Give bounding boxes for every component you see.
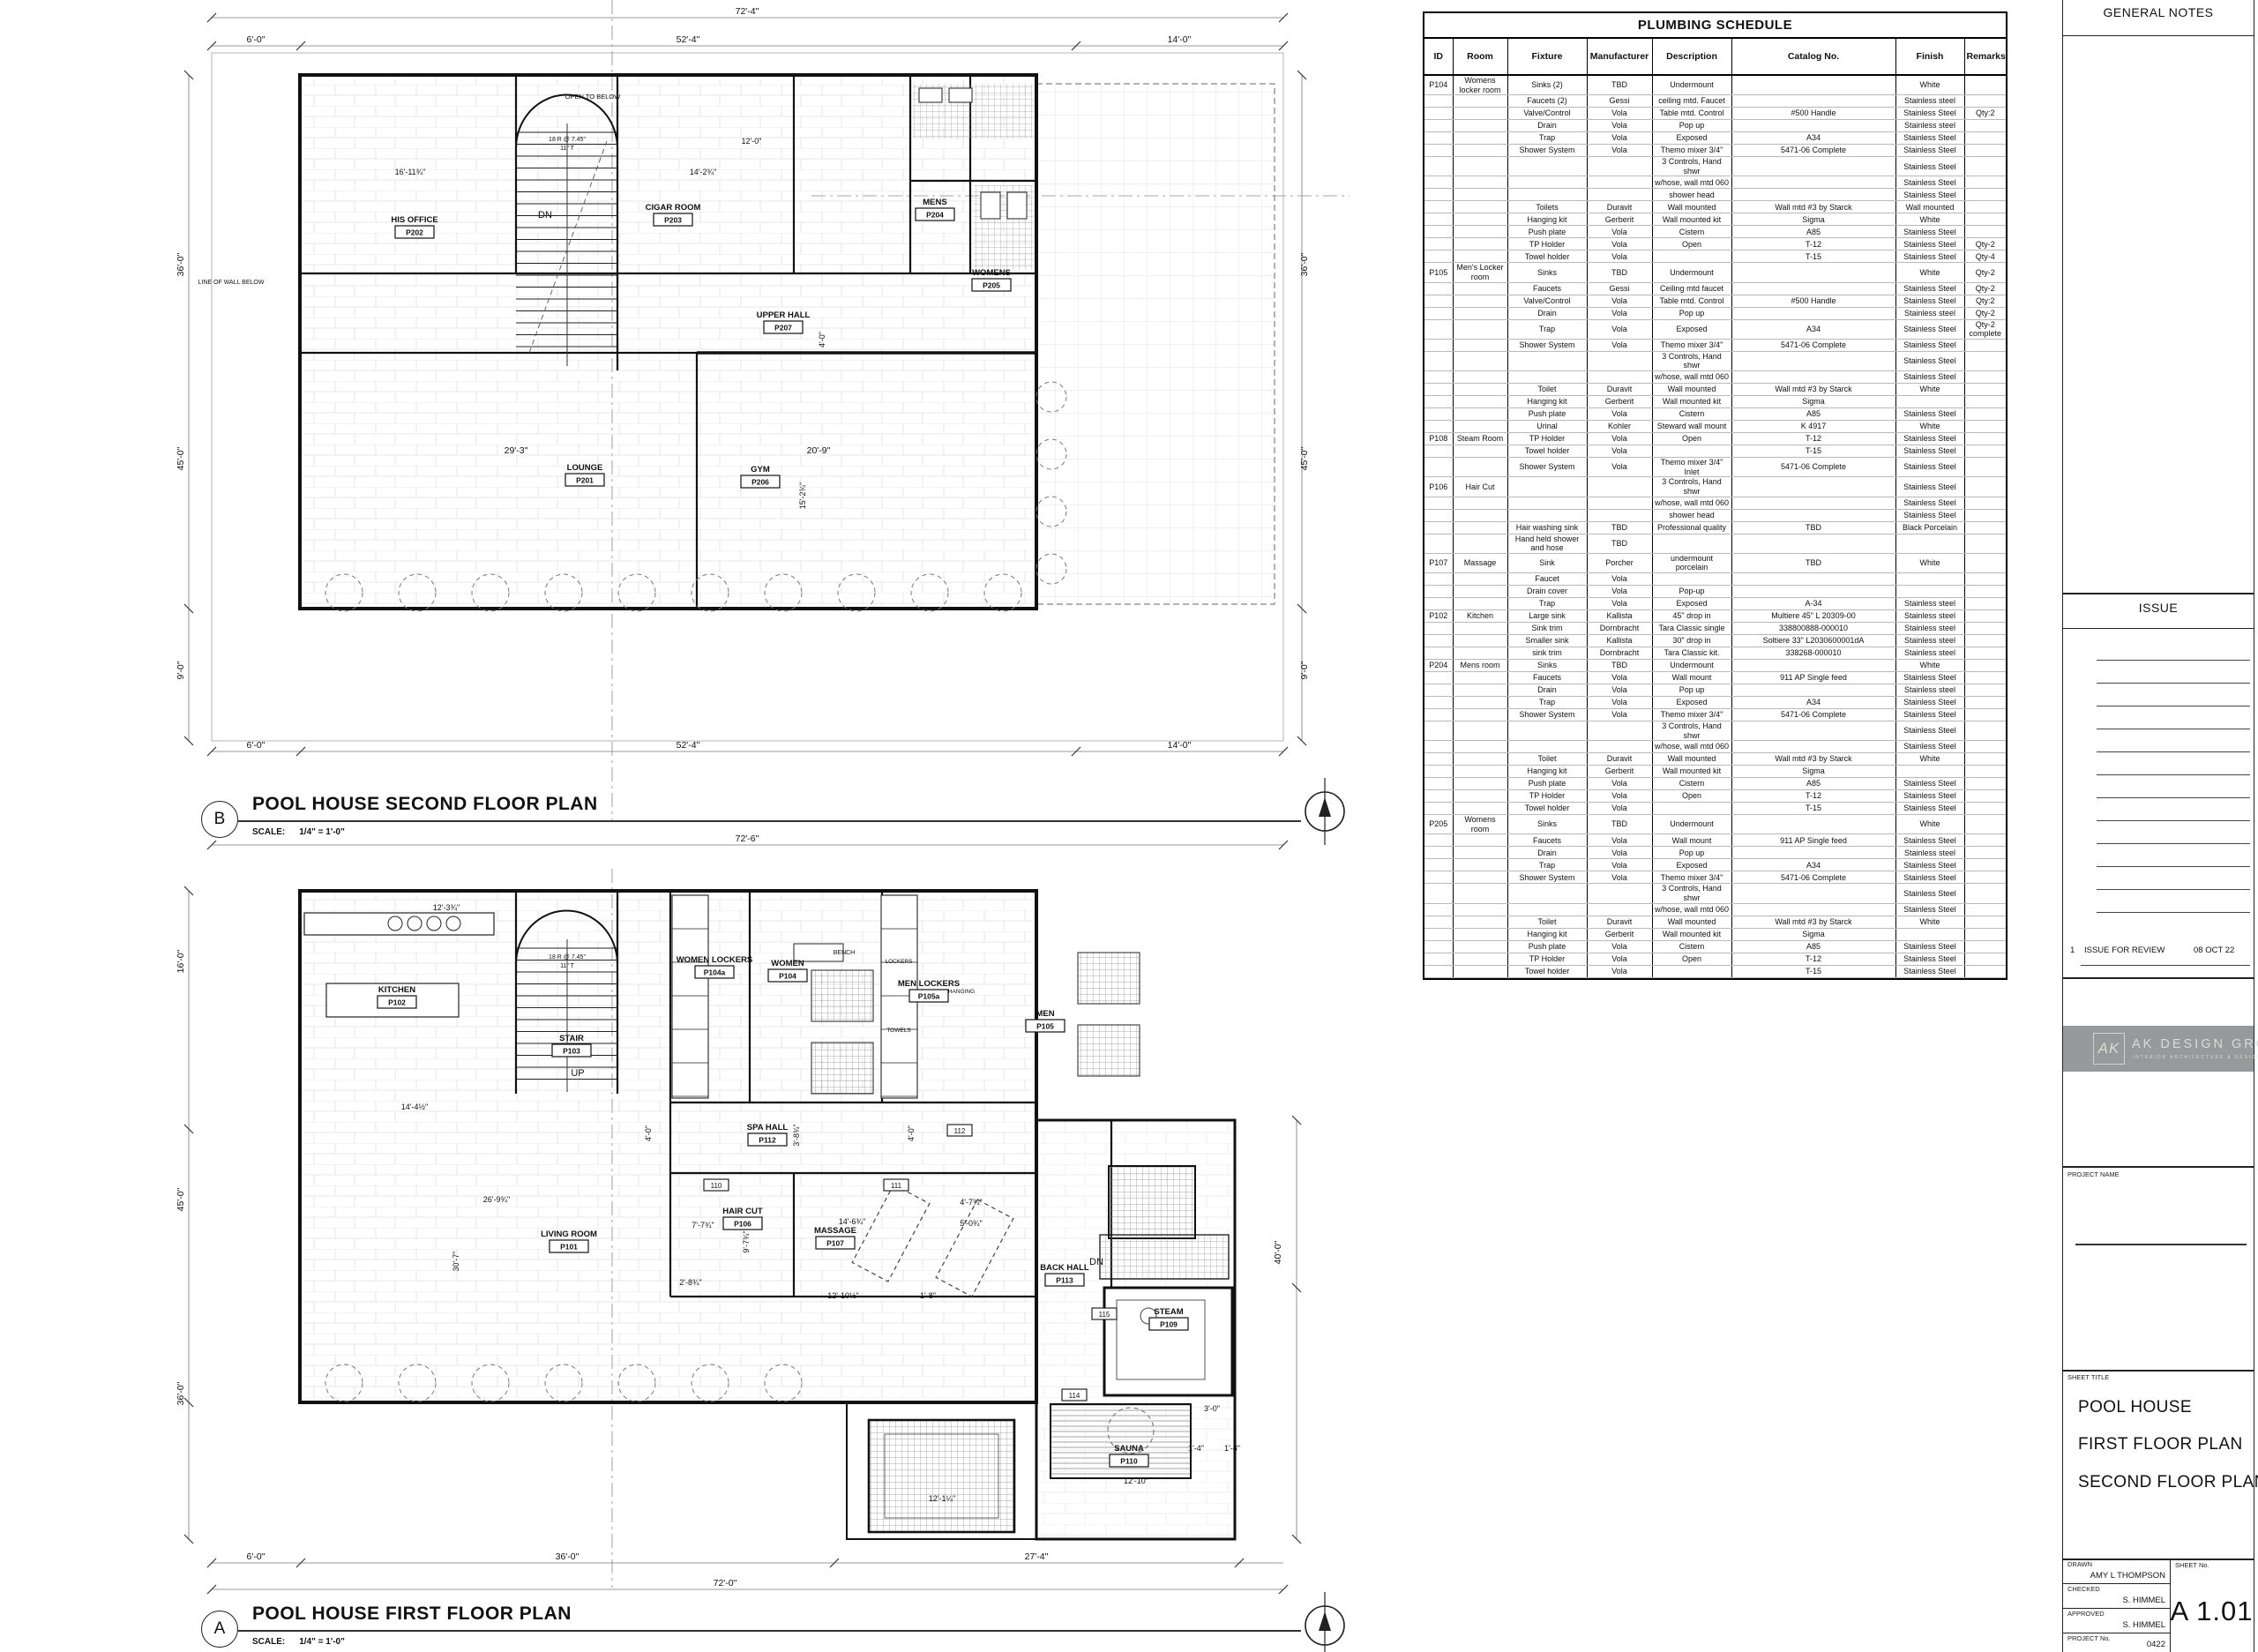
schedule-cell: [1731, 534, 1895, 553]
schedule-cell: [1453, 803, 1507, 815]
schedule-cell: Vola: [1587, 238, 1652, 250]
schedule-cell: [1964, 790, 2006, 803]
schedule-cell: Wall mtd #3 by Starck: [1731, 384, 1895, 396]
schedule-cell: [1507, 497, 1587, 509]
schedule-cell: Shower System: [1507, 871, 1587, 884]
schedule-cell: [1424, 176, 1453, 189]
schedule-row: Hanging kitGerberitWall mounted kitSigma: [1424, 928, 2006, 940]
schedule-cell: P108: [1424, 433, 1453, 445]
schedule-cell: Wall mounted kit: [1652, 396, 1731, 408]
schedule-row: Valve/ControlVolaTable mtd. Control#500 …: [1424, 108, 2006, 120]
schedule-row: ToiletsDuravitWall mountedWall mtd #3 by…: [1424, 201, 2006, 213]
schedule-cell: A85: [1731, 940, 1895, 953]
schedule-row: DrainVolaPop upStainless steelQty-2: [1424, 307, 2006, 319]
schedule-cell: Vola: [1587, 132, 1652, 145]
schedule-cell: [1424, 408, 1453, 421]
schedule-cell: Steward wall mount: [1652, 421, 1731, 433]
dimension-label: 4'-0": [644, 1125, 653, 1141]
title-underline: [238, 820, 1301, 822]
issue-blank-line: [2097, 683, 2250, 684]
schedule-cell: [1895, 572, 1964, 585]
schedule-cell: Porcher: [1587, 553, 1652, 572]
schedule-cell: [1731, 585, 1895, 597]
schedule-cell: TBD: [1587, 521, 1652, 534]
schedule-cell: Stainless Steel: [1895, 157, 1964, 176]
schedule-cell: [1964, 647, 2006, 659]
schedule-cell: [1964, 859, 2006, 871]
schedule-cell: [1731, 157, 1895, 176]
schedule-cell: TP Holder: [1507, 953, 1587, 965]
schedule-cell: Wall mounted: [1652, 201, 1731, 213]
schedule-cell: [1731, 684, 1895, 696]
schedule-cell: White: [1895, 815, 1964, 834]
schedule-row: TrapVolaExposedA34Stainless SteelQty-2 c…: [1424, 319, 2006, 339]
schedule-row: P108Steam RoomTP HolderVolaOpenT-12Stain…: [1424, 433, 2006, 445]
schedule-cell: Large sink: [1507, 609, 1587, 622]
general-notes-header: GENERAL NOTES: [2063, 5, 2254, 19]
schedule-cell: [1453, 189, 1507, 201]
schedule-cell: [1964, 157, 2006, 176]
schedule-cell: [1453, 120, 1507, 132]
schedule-row: P102KitchenLarge sinkKallista45" drop in…: [1424, 609, 2006, 622]
schedule-cell: [1453, 371, 1507, 384]
schedule-row: Sink trimDornbrachtTara Classic single33…: [1424, 622, 2006, 634]
schedule-cell: [1731, 572, 1895, 585]
dimension-label: 14'-0": [1168, 34, 1192, 45]
schedule-cell: [1964, 609, 2006, 622]
schedule-cell: Smaller sink: [1507, 634, 1587, 647]
schedule-row: Hanging kitGerberitWall mounted kitSigma…: [1424, 213, 2006, 226]
schedule-cell: [1731, 903, 1895, 916]
issue-blank-line: [2097, 889, 2250, 890]
schedule-cell: [1587, 189, 1652, 201]
schedule-cell: K 4917: [1731, 421, 1895, 433]
schedule-cell: Stainless Steel: [1895, 176, 1964, 189]
schedule-cell: [1507, 721, 1587, 740]
schedule-cell: Womens room: [1453, 815, 1507, 834]
schedule-row: FaucetsVolaWall mount911 AP Single feedS…: [1424, 671, 2006, 684]
schedule-cell: [1964, 597, 2006, 609]
schedule-row: Hanging kitGerberitWall mounted kitSigma: [1424, 396, 2006, 408]
plan-ref-bubble: A: [201, 1611, 238, 1648]
schedule-cell: [1731, 659, 1895, 671]
room-tag: P104: [779, 972, 796, 981]
dimension-label: 52'-4": [677, 740, 700, 751]
schedule-cell: [1964, 803, 2006, 815]
schedule-row: Push plateVolaCisternA85Stainless Steel: [1424, 408, 2006, 421]
schedule-cell: Trap: [1507, 859, 1587, 871]
schedule-cell: Vola: [1587, 671, 1652, 684]
room-tag: P107: [826, 1239, 844, 1248]
schedule-cell: Vola: [1587, 319, 1652, 339]
schedule-cell: [1731, 176, 1895, 189]
issue-header: ISSUE: [2063, 601, 2254, 615]
schedule-cell: [1731, 509, 1895, 521]
plan-note: 11" T: [560, 963, 575, 969]
schedule-row: Drain coverVolaPop-up: [1424, 585, 2006, 597]
schedule-cell: Urinal: [1507, 421, 1587, 433]
schedule-cell: Kallista: [1587, 609, 1652, 622]
schedule-cell: ceiling mtd. Faucet: [1652, 95, 1731, 108]
schedule-row: Faucets (2)Gessiceiling mtd. FaucetStain…: [1424, 95, 2006, 108]
schedule-cell: Pop up: [1652, 120, 1731, 132]
schedule-cell: White: [1895, 384, 1964, 396]
dimension-label: 52'-4": [677, 34, 700, 45]
room-tag: P204: [926, 211, 944, 220]
door-tag: 114: [1069, 1392, 1080, 1400]
schedule-cell: [1453, 572, 1507, 585]
schedule-cell: Open: [1652, 433, 1731, 445]
schedule-cell: [1964, 753, 2006, 766]
plan-note: 18 R @ 7.45": [549, 954, 586, 961]
room-label: HAIR CUT: [722, 1207, 763, 1216]
plan-title: POOL HOUSE FIRST FLOOR PLAN: [252, 1603, 572, 1625]
schedule-cell: [1652, 803, 1731, 815]
schedule-cell: T-15: [1731, 250, 1895, 263]
schedule-row: Valve/ControlVolaTable mtd. Control#500 …: [1424, 295, 2006, 307]
schedule-row: P204Mens roomSinksTBDUndermountWhite: [1424, 659, 2006, 671]
schedule-row: Shower SystemVolaThemo mixer 3/4"5471-06…: [1424, 339, 2006, 351]
schedule-cell: Open: [1652, 953, 1731, 965]
schedule-cell: Duravit: [1587, 384, 1652, 396]
schedule-cell: Stainless steel: [1895, 684, 1964, 696]
schedule-cell: [1424, 145, 1453, 157]
schedule-cell: Push plate: [1507, 940, 1587, 953]
schedule-cell: Stainless Steel: [1895, 940, 1964, 953]
schedule-cell: T-12: [1731, 790, 1895, 803]
schedule-cell: [1453, 534, 1507, 553]
schedule-row: ToiletDuravitWall mountedWall mtd #3 by …: [1424, 753, 2006, 766]
schedule-cell: T-15: [1731, 445, 1895, 458]
schedule-cell: #500 Handle: [1731, 108, 1895, 120]
schedule-cell: Sinks: [1507, 659, 1587, 671]
schedule-cell: White: [1895, 421, 1964, 433]
dimension-label: 45'-0": [176, 446, 186, 470]
dimension-label: 9'-0": [1299, 661, 1310, 679]
dimension-label: 15'-2¾": [798, 482, 807, 509]
schedule-cell: [1424, 834, 1453, 847]
schedule-cell: Stainless Steel: [1895, 108, 1964, 120]
plumbing-schedule: PLUMBING SCHEDULE IDRoomFixtureManufactu…: [1423, 11, 2008, 980]
schedule-cell: Vola: [1587, 847, 1652, 859]
room-tag: P202: [406, 228, 423, 237]
schedule-cell: Towel holder: [1507, 445, 1587, 458]
dimension-label: 30'-7": [452, 1252, 460, 1272]
schedule-cell: [1731, 497, 1895, 509]
dimension-label: 16'-0": [176, 949, 186, 973]
schedule-cell: [1424, 108, 1453, 120]
schedule-cell: Hanging kit: [1507, 396, 1587, 408]
schedule-cell: [1652, 965, 1731, 977]
schedule-cell: 911 AP Single feed: [1731, 671, 1895, 684]
schedule-row: DrainVolaPop upStainless steel: [1424, 684, 2006, 696]
schedule-cell: [1424, 597, 1453, 609]
schedule-cell: [1731, 95, 1895, 108]
schedule-cell: [1587, 477, 1652, 497]
schedule-cell: [1964, 396, 2006, 408]
dimension-label: 14'-2¾": [690, 168, 716, 176]
schedule-cell: A34: [1731, 859, 1895, 871]
dimension-label: 9'-0": [176, 661, 186, 679]
schedule-cell: Valve/Control: [1507, 108, 1587, 120]
schedule-cell: Exposed: [1652, 597, 1731, 609]
schedule-cell: Stainless Steel: [1895, 903, 1964, 916]
schedule-cell: Stainless Steel: [1895, 250, 1964, 263]
issue-blank-line: [2097, 660, 2250, 661]
schedule-column-header: ID: [1424, 39, 1453, 75]
schedule-cell: Cistern: [1652, 940, 1731, 953]
schedule-cell: [1424, 622, 1453, 634]
schedule-cell: undermount porcelain: [1652, 553, 1731, 572]
schedule-cell: Ceiling mtd faucet: [1652, 282, 1731, 295]
schedule-cell: Vola: [1587, 597, 1652, 609]
dimension-label: 72'-0": [714, 1578, 737, 1588]
schedule-cell: Kallista: [1587, 634, 1652, 647]
schedule-cell: [1731, 847, 1895, 859]
schedule-cell: Stainless Steel: [1895, 458, 1964, 477]
schedule-row: Shower SystemVolaThemo mixer 3/4" Inlet5…: [1424, 458, 2006, 477]
schedule-cell: A85: [1731, 226, 1895, 238]
dimension-label: 4'-7¾": [960, 1198, 982, 1207]
schedule-cell: [1964, 201, 2006, 213]
schedule-cell: [1964, 339, 2006, 351]
schedule-cell: Shower System: [1507, 458, 1587, 477]
schedule-cell: [1453, 213, 1507, 226]
schedule-cell: [1964, 778, 2006, 790]
dimension-label: 12'-10": [1124, 1476, 1148, 1485]
schedule-cell: [1895, 396, 1964, 408]
schedule-cell: Themo mixer 3/4": [1652, 145, 1731, 157]
schedule-cell: Duravit: [1587, 753, 1652, 766]
schedule-cell: [1964, 145, 2006, 157]
room-label: WOMEN LOCKERS: [677, 955, 753, 965]
schedule-row: w/hose, wall mtd 060Stainless Steel: [1424, 371, 2006, 384]
schedule-cell: Stainless Steel: [1895, 145, 1964, 157]
schedule-cell: [1453, 458, 1507, 477]
schedule-cell: Exposed: [1652, 319, 1731, 339]
schedule-cell: [1453, 157, 1507, 176]
schedule-table: IDRoomFixtureManufacturerDescriptionCata…: [1424, 39, 2006, 978]
dimension-label: 7'-7¾": [692, 1221, 714, 1230]
sheet-title-line: POOL HOUSE: [2078, 1398, 2192, 1417]
schedule-cell: [1587, 157, 1652, 176]
plan-title: POOL HOUSE SECOND FLOOR PLAN: [252, 794, 598, 815]
schedule-cell: [1453, 108, 1507, 120]
plan-scale: SCALE:1/4" = 1'-0": [252, 1637, 345, 1647]
schedule-cell: Pop up: [1652, 307, 1731, 319]
schedule-cell: [1453, 597, 1507, 609]
schedule-cell: [1731, 282, 1895, 295]
schedule-cell: T-15: [1731, 965, 1895, 977]
schedule-cell: 3 Controls, Hand shwr: [1652, 477, 1731, 497]
schedule-cell: Duravit: [1587, 916, 1652, 928]
plan-ref-bubble: B: [201, 801, 238, 838]
schedule-cell: Wall mtd #3 by Starck: [1731, 201, 1895, 213]
schedule-cell: Towel holder: [1507, 965, 1587, 977]
schedule-cell: Exposed: [1652, 696, 1731, 708]
schedule-cell: [1424, 120, 1453, 132]
schedule-cell: [1453, 497, 1507, 509]
schedule-cell: Stainless steel: [1895, 307, 1964, 319]
schedule-cell: Exposed: [1652, 859, 1731, 871]
schedule-cell: P107: [1424, 553, 1453, 572]
schedule-cell: [1652, 445, 1731, 458]
schedule-cell: [1424, 859, 1453, 871]
schedule-cell: [1453, 940, 1507, 953]
schedule-cell: [1424, 201, 1453, 213]
door-tag: 115: [1099, 1311, 1110, 1319]
checked-value: S. HIMMEL: [2122, 1596, 2165, 1605]
schedule-cell: [1964, 120, 2006, 132]
approved-row: APPROVED S. HIMMEL: [2063, 1608, 2171, 1633]
schedule-cell: Sigma: [1731, 213, 1895, 226]
schedule-cell: Toilets: [1507, 201, 1587, 213]
schedule-cell: 30" drop in: [1652, 634, 1731, 647]
schedule-cell: [1424, 189, 1453, 201]
schedule-cell: [1507, 176, 1587, 189]
sheet-title-line: FIRST FLOOR PLAN: [2078, 1435, 2243, 1454]
schedule-cell: [1424, 213, 1453, 226]
schedule-cell: [1424, 847, 1453, 859]
schedule-cell: [1731, 741, 1895, 753]
schedule-cell: T-12: [1731, 433, 1895, 445]
project-no-row: PROJECT No. 0422: [2063, 1633, 2171, 1652]
schedule-row: Smaller sinkKallista30" drop inSoltiere …: [1424, 634, 2006, 647]
schedule-cell: [1424, 696, 1453, 708]
schedule-cell: [1731, 721, 1895, 740]
schedule-cell: [1964, 928, 2006, 940]
schedule-cell: [1895, 534, 1964, 553]
schedule-cell: Stainless steel: [1895, 634, 1964, 647]
schedule-cell: Gerberit: [1587, 928, 1652, 940]
schedule-cell: [1424, 396, 1453, 408]
schedule-cell: Toilet: [1507, 753, 1587, 766]
drawn-value: AMY L THOMPSON: [2090, 1571, 2165, 1581]
schedule-cell: [1424, 766, 1453, 778]
dimension-label: 9'-7¾": [742, 1230, 751, 1252]
schedule-cell: [1424, 371, 1453, 384]
dimension-label: 20'-9": [807, 445, 831, 456]
schedule-column-header: Description: [1652, 39, 1731, 75]
schedule-row: Towel holderVolaT-15Stainless SteelQty-4: [1424, 250, 2006, 263]
schedule-row: TrapVolaExposedA-34Stainless steel: [1424, 597, 2006, 609]
dimension-label: 6'-0": [247, 740, 265, 751]
schedule-cell: [1424, 671, 1453, 684]
schedule-row: DrainVolaPop upStainless steel: [1424, 120, 2006, 132]
issue-blank-line: [2097, 843, 2250, 844]
schedule-cell: Vola: [1587, 226, 1652, 238]
dimension-label: 36'-0": [1299, 252, 1310, 276]
schedule-cell: Qty-2: [1964, 307, 2006, 319]
schedule-column-header: Finish: [1895, 39, 1964, 75]
dimension-label: 3'-8¾": [792, 1124, 801, 1146]
schedule-cell: Stainless Steel: [1895, 859, 1964, 871]
schedule-cell: Push plate: [1507, 778, 1587, 790]
schedule-cell: Stainless Steel: [1895, 778, 1964, 790]
room-label: GYM: [751, 465, 770, 475]
schedule-row: UrinalKohlerSteward wall mountK 4917Whit…: [1424, 421, 2006, 433]
schedule-cell: Undermount: [1652, 659, 1731, 671]
schedule-cell: TBD: [1731, 553, 1895, 572]
schedule-cell: [1964, 634, 2006, 647]
schedule-cell: Vola: [1587, 108, 1652, 120]
schedule-cell: [1964, 521, 2006, 534]
schedule-cell: Wall mount: [1652, 671, 1731, 684]
schedule-cell: [1453, 847, 1507, 859]
schedule-cell: [1453, 778, 1507, 790]
schedule-cell: [1453, 622, 1507, 634]
room-tag: P112: [759, 1136, 776, 1145]
schedule-cell: Qty:2: [1964, 108, 2006, 120]
schedule-cell: Vola: [1587, 834, 1652, 847]
schedule-row: w/hose, wall mtd 060Stainless Steel: [1424, 741, 2006, 753]
schedule-cell: Stainless Steel: [1895, 226, 1964, 238]
schedule-cell: [1731, 263, 1895, 282]
schedule-cell: [1424, 572, 1453, 585]
schedule-cell: [1731, 351, 1895, 370]
schedule-cell: Pop up: [1652, 684, 1731, 696]
room-label: MASSAGE: [814, 1226, 856, 1236]
schedule-cell: [1424, 307, 1453, 319]
schedule-cell: 3 Controls, Hand shwr: [1652, 351, 1731, 370]
schedule-cell: [1964, 815, 2006, 834]
schedule-cell: 911 AP Single feed: [1731, 834, 1895, 847]
schedule-row: shower headStainless Steel: [1424, 189, 2006, 201]
schedule-cell: T-15: [1731, 803, 1895, 815]
schedule-row: TrapVolaExposedA34Stainless Steel: [1424, 132, 2006, 145]
schedule-row: DrainVolaPop upStainless steel: [1424, 847, 2006, 859]
schedule-cell: Qty-2: [1964, 282, 2006, 295]
schedule-cell: [1587, 497, 1652, 509]
schedule-cell: [1453, 884, 1507, 903]
schedule-cell: 5471-06 Complete: [1731, 339, 1895, 351]
schedule-cell: [1424, 351, 1453, 370]
schedule-row: Towel holderVolaT-15Stainless Steel: [1424, 965, 2006, 977]
schedule-cell: Drain: [1507, 684, 1587, 696]
schedule-title: PLUMBING SCHEDULE: [1424, 13, 2006, 39]
schedule-cell: Vola: [1587, 433, 1652, 445]
schedule-cell: [1453, 585, 1507, 597]
schedule-cell: [1964, 421, 2006, 433]
schedule-cell: Undermount: [1652, 263, 1731, 282]
schedule-cell: [1964, 847, 2006, 859]
schedule-cell: [1453, 696, 1507, 708]
dimension-label: 2'-8¾": [679, 1278, 701, 1287]
schedule-cell: Trap: [1507, 597, 1587, 609]
schedule-cell: P106: [1424, 477, 1453, 497]
schedule-cell: Stainless Steel: [1895, 953, 1964, 965]
schedule-cell: White: [1895, 916, 1964, 928]
schedule-cell: Toilet: [1507, 916, 1587, 928]
logo-monogram-icon: AK: [2093, 1033, 2125, 1065]
dimension-label: 16'-11¾": [395, 168, 426, 176]
schedule-cell: Stainless Steel: [1895, 790, 1964, 803]
schedule-row: Hanging kitGerberitWall mounted kitSigma: [1424, 766, 2006, 778]
schedule-row: Shower SystemVolaThemo mixer 3/4"5471-06…: [1424, 871, 2006, 884]
issue-number: 1: [2070, 946, 2075, 955]
schedule-cell: White: [1895, 263, 1964, 282]
schedule-cell: Hand held shower and hose: [1507, 534, 1587, 553]
schedule-cell: Wall mounted: [1652, 753, 1731, 766]
schedule-cell: [1453, 753, 1507, 766]
schedule-cell: Wall mounted: [1652, 916, 1731, 928]
plan-scale: SCALE:1/4" = 1'-0": [252, 827, 345, 837]
room-tag: P203: [664, 216, 682, 225]
schedule-cell: Open: [1652, 238, 1731, 250]
room-tag: P206: [751, 478, 769, 487]
dimension-label: 4'-0": [907, 1125, 916, 1141]
schedule-cell: [1424, 132, 1453, 145]
